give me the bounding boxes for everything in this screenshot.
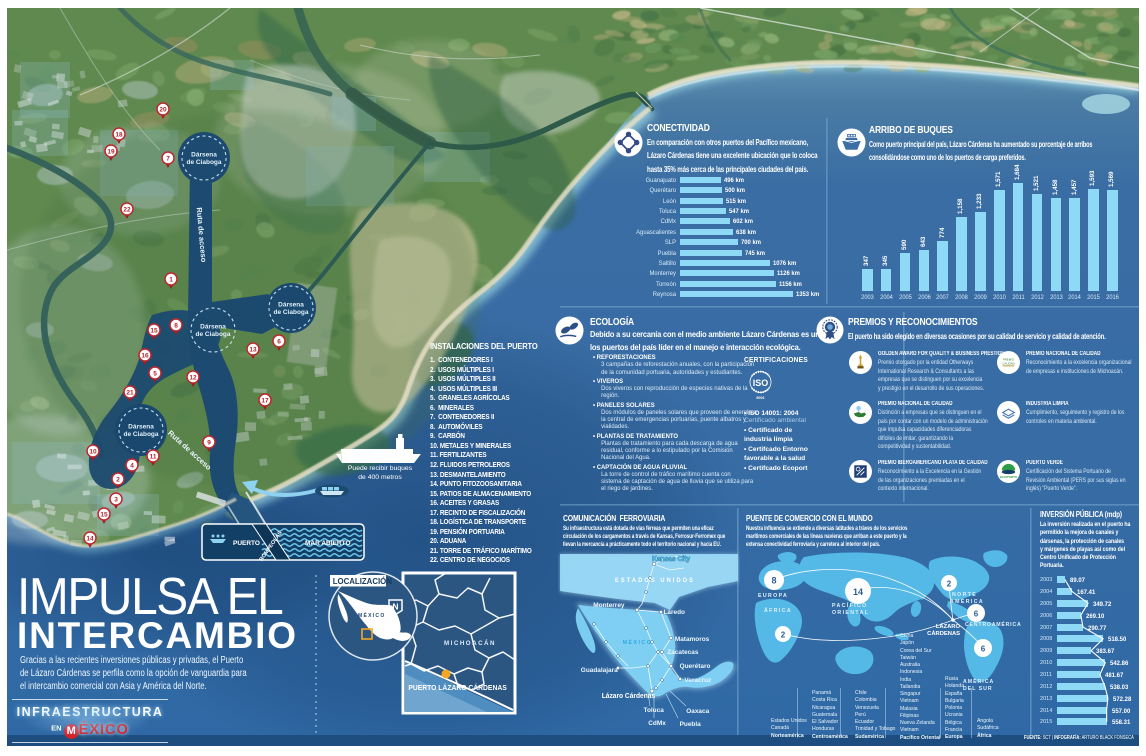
svg-text:3: 3 [114,496,118,503]
svg-text:15: 15 [100,511,108,518]
svg-text:EUROPA: EUROPA [758,593,788,599]
svg-text:1: 1 [169,276,173,283]
svg-text:11: 11 [150,453,157,460]
svg-text:Puede recibir buques: Puede recibir buques [348,465,413,472]
svg-text:Matamoros: Matamoros [675,636,710,643]
svg-text:ÁFRICA: ÁFRICA [764,607,792,614]
svg-text:de Ciaboga: de Ciaboga [273,309,308,316]
svg-text:9: 9 [207,439,211,446]
svg-text:16: 16 [141,352,149,359]
svg-text:MAR ABIERTO: MAR ABIERTO [305,540,351,547]
svg-text:CENTROAMÉRICA: CENTROAMÉRICA [965,620,1022,628]
svg-text:22: 22 [123,206,131,213]
svg-text:10: 10 [89,448,97,455]
svg-text:Laredo: Laredo [663,609,685,616]
svg-text:MÉXICO: MÉXICO [358,611,386,619]
svg-text:18: 18 [115,131,123,138]
svg-text:Zacatecas: Zacatecas [667,649,699,656]
svg-text:de 400 metros: de 400 metros [358,474,402,481]
svg-text:Oaxaca: Oaxaca [686,708,709,715]
svg-text:Monterrey: Monterrey [593,602,625,609]
svg-text:Dársena: Dársena [128,424,154,431]
svg-text:2: 2 [781,631,786,640]
svg-text:4: 4 [130,462,134,469]
svg-text:9001: 9001 [756,396,764,400]
svg-text:ESTADOS UNIDOS: ESTADOS UNIDOS [615,578,695,584]
svg-text:8: 8 [174,322,178,329]
svg-text:de Ciaboga: de Ciaboga [186,159,221,166]
svg-text:5: 5 [153,370,157,377]
svg-text:6: 6 [981,645,986,654]
svg-text:AMÉRICA: AMÉRICA [963,677,994,685]
svg-text:17: 17 [261,397,269,404]
svg-text:Querétaro: Querétaro [680,663,711,670]
svg-text:Kansas City: Kansas City [652,556,690,563]
svg-text:Veracruz: Veracruz [684,677,712,684]
svg-text:PACÍFICO: PACÍFICO [832,601,868,609]
svg-text:2: 2 [947,580,952,589]
svg-text:NORTE: NORTE [952,592,977,598]
svg-text:Dársena: Dársena [278,302,304,309]
svg-text:Guadalajara: Guadalajara [581,667,618,674]
svg-text:N: N [392,602,398,612]
svg-text:14: 14 [853,587,863,597]
svg-text:ORIENTAL: ORIENTAL [832,610,869,616]
svg-text:2: 2 [116,476,120,483]
svg-text:19: 19 [107,148,115,155]
svg-text:13: 13 [249,346,257,353]
svg-text:15: 15 [150,327,158,334]
svg-text:MICHOACÁN: MICHOACÁN [444,640,496,647]
svg-text:Dársena: Dársena [200,324,226,331]
svg-text:de Ciaboga: de Ciaboga [123,431,158,438]
svg-text:6: 6 [974,610,979,619]
svg-text:12: 12 [189,374,197,381]
svg-text:Dársena: Dársena [191,152,217,159]
svg-text:LÁZARO: LÁZARO [936,623,961,630]
svg-text:AMÉRICA: AMÉRICA [950,597,984,605]
svg-text:MÉXICO: MÉXICO [623,638,653,646]
svg-text:7: 7 [166,155,170,162]
svg-text:Puebla: Puebla [680,721,701,728]
svg-text:CdMx: CdMx [648,720,666,727]
svg-text:DEL SUR: DEL SUR [963,686,993,692]
svg-text:ECOPORTS: ECOPORTS [1000,475,1017,479]
svg-text:8: 8 [771,576,776,586]
svg-text:20: 20 [159,106,167,113]
svg-text:Toluca: Toluca [644,707,665,714]
svg-text:6: 6 [277,338,281,345]
svg-text:de Ciaboga: de Ciaboga [195,331,230,338]
svg-text:ISO: ISO [753,378,769,388]
svg-text:21: 21 [126,389,134,396]
svg-text:CALIDAD: CALIDAD [1002,361,1014,365]
svg-text:LOCALIZACIÓN: LOCALIZACIÓN [333,577,392,586]
svg-text:Lázaro Cárdenas: Lázaro Cárdenas [602,693,656,700]
svg-text:PUERTO: PUERTO [233,540,260,547]
svg-text:14: 14 [86,535,94,542]
svg-text:PUERTO LÁZARO CÁRDENAS: PUERTO LÁZARO CÁRDENAS [408,683,507,692]
